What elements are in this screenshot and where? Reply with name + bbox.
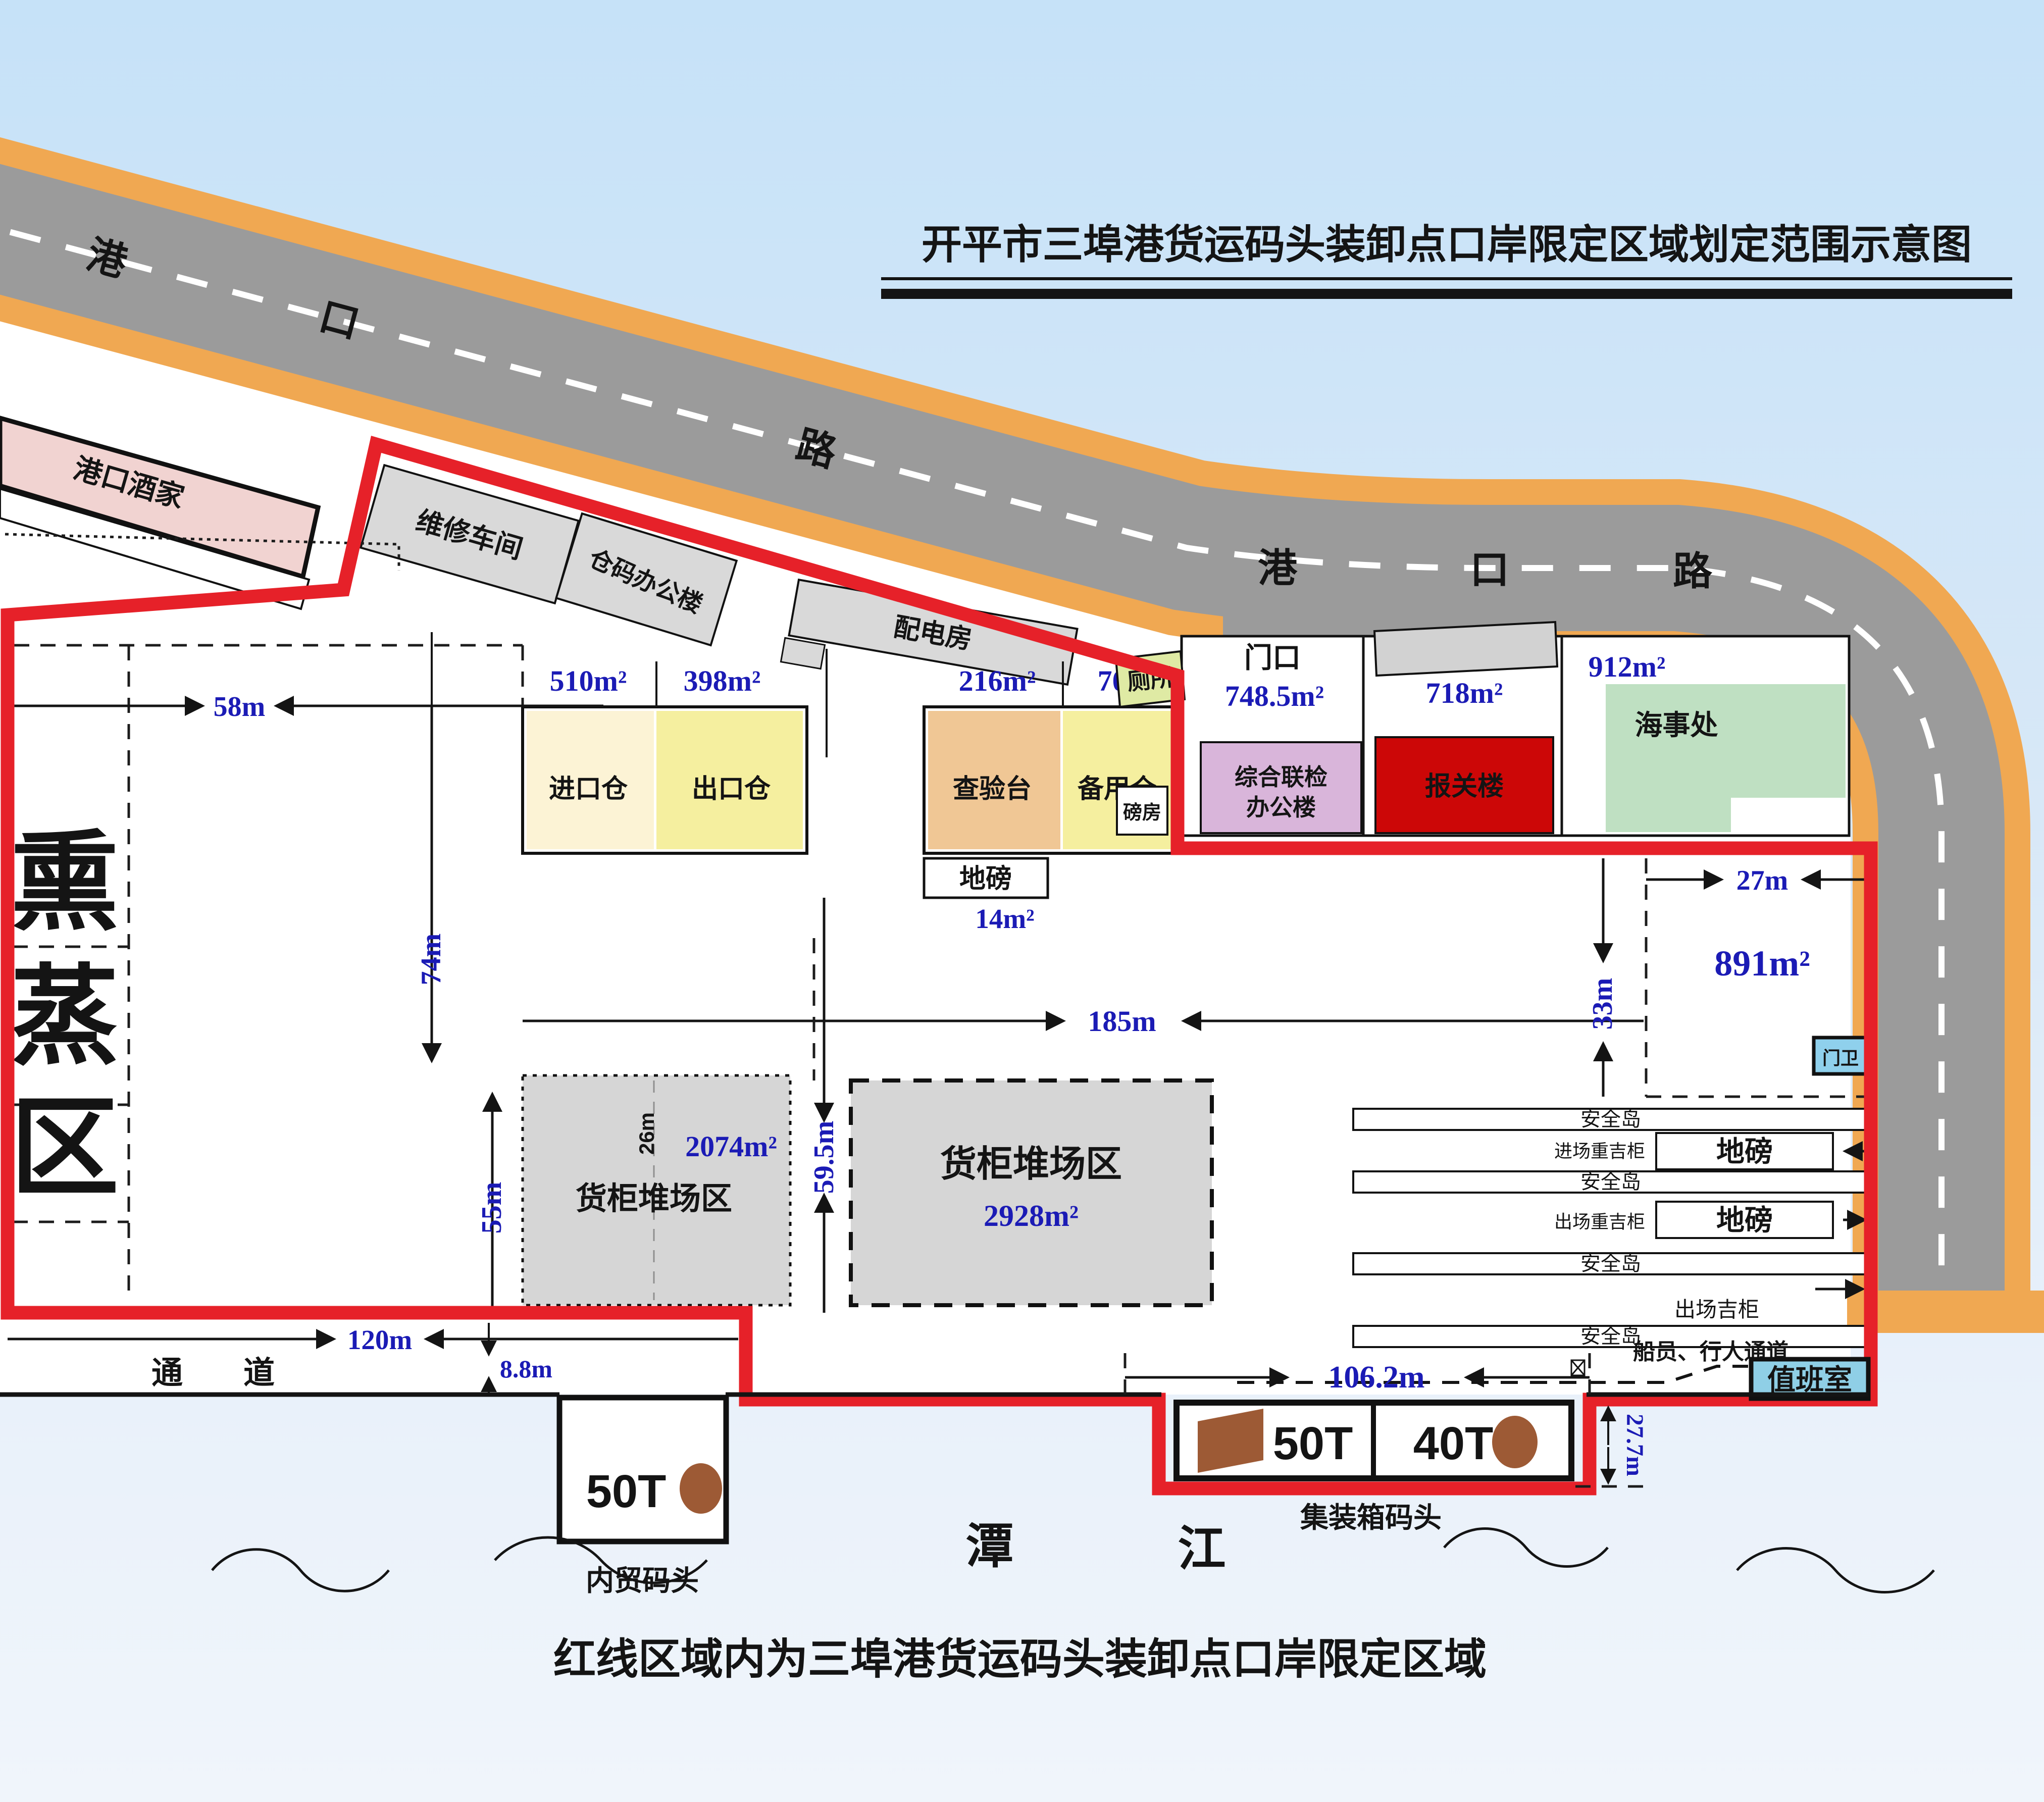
scale-in-label: 地磅 [1716, 1136, 1773, 1167]
dim-88-label: 8.8m [500, 1355, 552, 1383]
weighbridge-area-label: 14m² [975, 903, 1034, 934]
import-warehouse-label: 进口仓 [549, 775, 628, 804]
gate-area-label: 748.5m² [1225, 680, 1324, 712]
fumigation-char-1: 蒸 [11, 956, 119, 1077]
dim-33-label: 33m [1587, 978, 1618, 1030]
container-yards: 26m 2074m² 货柜堆场区 货柜堆场区 2928m² [523, 1075, 1212, 1305]
dim-1062-label: 106.2m [1328, 1360, 1424, 1395]
dim-74-label: 74m [416, 934, 447, 986]
maritime-label: 海事处 [1634, 709, 1718, 741]
yard-right-label: 货柜堆场区 [940, 1144, 1122, 1185]
inspect-area-label: 216m² [959, 664, 1036, 697]
dim-595-label: 59.5m [808, 1121, 840, 1194]
import-area-label: 510m² [550, 664, 627, 697]
page-title: 开平市三埠港货运码头装卸点口岸限定区域划定范围示意图 [922, 222, 1972, 267]
maritime-area-label: 912m² [1589, 650, 1666, 683]
road2-char-2: 路 [1673, 549, 1713, 593]
fumigation-char-2: 区 [11, 1087, 119, 1209]
office-row: 厕所 门口 748.5m² 综合联检 办公楼 718m² 报关楼 912m² 海… [1116, 622, 1849, 836]
yard-right-area-label: 2928m² [984, 1199, 1079, 1232]
customs-area-label: 718m² [1426, 677, 1503, 709]
gate-label: 门口 [1244, 642, 1301, 674]
dim-277-label: 27.7m [1621, 1414, 1648, 1476]
passage-label: 通道 [151, 1356, 335, 1391]
export-warehouse-label: 出口仓 [692, 775, 771, 804]
yard-right [851, 1080, 1212, 1305]
safety-island-3-label: 安全岛 [1580, 1253, 1641, 1275]
out-empty-label: 出场吉柜 [1674, 1298, 1759, 1321]
river-char-0: 潭 [965, 1520, 1013, 1573]
yard-left-area-label: 2074m² [685, 1130, 777, 1163]
caption: 红线区域内为三埠港货运码头装卸点口岸限定区域 [553, 1635, 1487, 1683]
yard-left-width-label: 26m [635, 1112, 658, 1155]
duty-room-label: 值班室 [1767, 1364, 1852, 1396]
dim-120-label: 120m [347, 1324, 412, 1355]
safety-island-4-label: 安全岛 [1580, 1325, 1641, 1348]
container-wharf-label: 集装箱码头 [1300, 1502, 1442, 1533]
river-char-1: 江 [1178, 1522, 1225, 1576]
weighbridge-label: 地磅 [959, 864, 1012, 894]
out-heavy-label: 出场重吉柜 [1554, 1211, 1645, 1232]
road2-char-0: 港 [1258, 546, 1298, 590]
yard-left-label: 货柜堆场区 [576, 1181, 732, 1216]
gray-annex-building [1374, 622, 1557, 676]
export-area-label: 398m² [684, 664, 761, 697]
scale-out-label: 地磅 [1716, 1204, 1773, 1236]
bollard-icon [680, 1463, 722, 1514]
container-40t-label: 40T [1413, 1418, 1494, 1469]
port-map: 港 口 路 港 口 路 开平市三埠港货运码头装卸点口岸限定区域划定范围示意图 港… [0, 0, 2044, 1802]
guard-label: 门卫 [1822, 1048, 1859, 1068]
joint-office-label-2: 办公楼 [1246, 794, 1316, 820]
road2-char-1: 口 [1470, 547, 1509, 592]
in-heavy-label: 进场重吉柜 [1554, 1141, 1645, 1161]
safety-island-2-label: 安全岛 [1580, 1171, 1641, 1193]
customs-label: 报关楼 [1425, 772, 1504, 801]
dim-58-label: 58m [214, 691, 266, 723]
area-891-label: 891m² [1714, 943, 1810, 984]
dim-27-label: 27m [1736, 865, 1788, 896]
bollard-icon-2 [1492, 1416, 1538, 1468]
domestic-50t-label: 50T [586, 1466, 667, 1517]
inspection-platform-label: 查验台 [953, 775, 1032, 804]
fumigation-char-0: 熏 [11, 821, 119, 943]
container-50t-label: 50T [1273, 1418, 1353, 1469]
dim-185-label: 185m [1088, 1005, 1156, 1038]
domestic-wharf-label: 内贸码头 [586, 1565, 699, 1597]
safety-island-1-label: 安全岛 [1580, 1108, 1641, 1130]
weigh-room-label: 磅房 [1123, 802, 1161, 823]
joint-office-label-1: 综合联检 [1235, 764, 1327, 790]
fumigation-label: 熏 蒸 区 [11, 821, 119, 1209]
dim-55-label: 55m [476, 1182, 507, 1234]
